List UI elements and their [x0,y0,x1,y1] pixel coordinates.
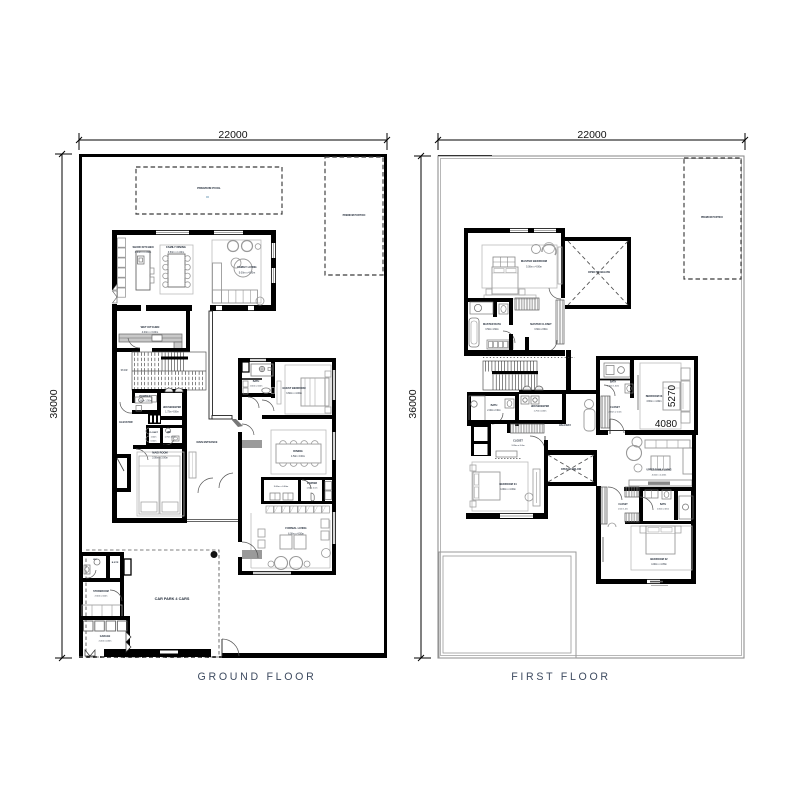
svg-text:1.75m 4.00m: 1.75m 4.00m [165,412,178,414]
svg-text:DINING: DINING [293,449,302,453]
svg-text:STOREROOM: STOREROOM [93,590,109,593]
svg-text:5270: 5270 [667,384,678,407]
svg-text:4.00m x 3.00m: 4.00m x 3.00m [142,331,159,334]
svg-text:5.00m x 4.00m: 5.00m x 4.00m [526,265,542,268]
svg-text:1.75m 1.5m: 1.75m 1.5m [165,437,176,439]
svg-text:1.60m 2.40m: 1.60m 2.40m [250,386,263,388]
svg-text:GROUND FLOOR: GROUND FLOOR [198,671,317,683]
svg-text:OPEN TO BELOW: OPEN TO BELOW [561,468,582,471]
svg-text:BEDROOM 03: BEDROOM 03 [646,395,663,398]
svg-text:CLOSET: CLOSET [610,406,620,409]
svg-text:SHOW KITCHEN: SHOW KITCHEN [132,245,153,249]
svg-text:6.00m x 4.50m: 6.00m x 4.50m [288,533,304,536]
svg-text:3.80m x 4.00m: 3.80m x 4.00m [646,401,661,403]
svg-text:1.60m 2.0m: 1.60m 2.0m [307,488,318,490]
svg-text:5.00m x 4.50m: 5.00m x 4.50m [239,271,256,274]
svg-text:MAID ROOM: MAID ROOM [152,451,167,455]
svg-text:FORMAL LIVING: FORMAL LIVING [285,526,306,530]
svg-text:3.00m x 3.00m: 3.00m x 3.00m [152,457,168,460]
svg-text:PREMIUM POOL: PREMIUM POOL [197,186,221,190]
svg-text:BEDROOM 04: BEDROOM 04 [499,482,517,486]
svg-text:4.00m x 4.05m: 4.00m x 4.05m [651,563,667,566]
svg-text:36000: 36000 [48,389,60,418]
svg-text:1.60m: 1.60m [151,437,157,439]
svg-text:GARAGE: GARAGE [100,635,111,638]
svg-text:22000: 22000 [218,129,247,141]
svg-text:36000: 36000 [407,389,419,418]
svg-text:MASTER CLOSET: MASTER CLOSET [530,323,552,326]
svg-text:2.00m 2.30m: 2.00m 2.30m [487,410,500,412]
svg-text:CLOSET: CLOSET [618,504,628,506]
svg-text:GUEST BEDROOM: GUEST BEDROOM [282,386,305,390]
svg-text:HOUSEKEEPER: HOUSEKEEPER [531,405,550,408]
svg-text:1.75m 4.00m: 1.75m 4.00m [534,411,547,413]
svg-text:CLOSET: CLOSET [513,440,523,443]
svg-text:4.00m x 4.00m: 4.00m x 4.00m [500,488,516,491]
svg-text:CLOSET: CLOSET [149,432,159,434]
svg-text:BATH: BATH [253,380,260,383]
svg-text:CAR PARK 4 CARS: CAR PARK 4 CARS [155,597,190,601]
svg-text:FAMILY DINING: FAMILY DINING [166,245,186,249]
svg-text:PREMIUM PORTICO: PREMIUM PORTICO [343,214,366,217]
svg-text:WC: WC [167,432,171,434]
svg-text:2.00m 4.00m: 2.00m 4.00m [99,641,112,643]
svg-text:MASTER BATH: MASTER BATH [483,323,501,326]
svg-text:22000: 22000 [577,129,606,141]
svg-text:3.50m 4.60m: 3.50m 4.60m [485,329,498,331]
svg-text:STAIR: STAIR [121,369,128,372]
svg-text:3.05m x 0.6m: 3.05m x 0.6m [511,445,524,447]
svg-text:3.60m x 4.00m: 3.60m x 4.00m [286,392,302,395]
svg-text:0.60m: 0.60m [151,441,157,443]
svg-text:BATH: BATH [610,381,617,384]
svg-text:MAIN ENTRANCE: MAIN ENTRANCE [197,441,218,444]
svg-text:BEDROOM 02: BEDROOM 02 [650,557,668,561]
svg-text:4080: 4080 [655,419,678,430]
svg-text:2.50m 2.40m: 2.50m 2.40m [95,596,108,598]
svg-text:3.60m x 1.00m: 3.60m x 1.00m [135,251,152,254]
svg-text:OPEN TO BELOW: OPEN TO BELOW [588,270,611,274]
svg-text:1.60m 2.45m: 1.60m 2.45m [657,509,669,511]
svg-text:WC: WC [93,559,97,561]
svg-text:3.60m 2.80m: 3.60m 2.80m [534,329,547,331]
svg-text:WET KITCHEN: WET KITCHEN [141,325,160,329]
svg-text:POWDER: POWDER [307,483,318,485]
svg-text:FIRST FLOOR: FIRST FLOOR [511,671,611,683]
svg-text:1.60m 1.50m: 1.60m 1.50m [138,401,151,403]
svg-text:4.50m 3.00m: 4.50m 3.00m [291,455,305,458]
svg-text:FAMILY LIVING: FAMILY LIVING [237,265,256,269]
svg-text:3.60m x 0.60m: 3.60m x 0.60m [274,486,289,488]
svg-text:B.STR: B.STR [112,562,119,564]
svg-text:MASTER BEDROOM: MASTER BEDROOM [521,259,548,263]
svg-text:4.00m x 4.00m: 4.00m x 4.00m [652,474,667,476]
svg-text:PREMIUM PORTICO: PREMIUM PORTICO [701,217,723,219]
svg-text:BATH: BATH [660,503,667,506]
svg-text:3.50m x 1.00m: 3.50m x 1.00m [168,251,185,254]
svg-text:HOUSEKEEPER: HOUSEKEEPER [163,406,182,409]
svg-text:POWDER: POWDER [139,395,150,398]
svg-text:2.45m x 0.6m: 2.45m x 0.6m [608,412,621,414]
svg-text:UPPER FAMILY LIVING: UPPER FAMILY LIVING [646,469,671,472]
svg-text:HALLWAY: HALLWAY [559,424,571,427]
svg-text:2.0m 1.0m: 2.0m 1.0m [618,509,628,511]
svg-text:BATH: BATH [491,404,498,407]
svg-text:ELEVATOR: ELEVATOR [119,421,132,424]
